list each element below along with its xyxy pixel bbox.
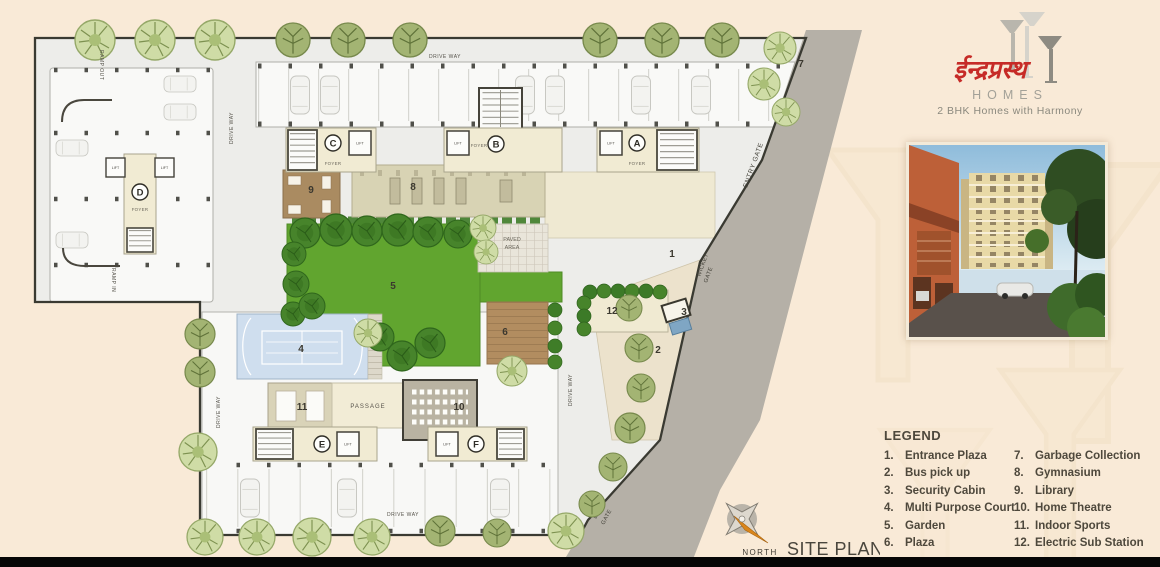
logo: ईन्द्रप्रस्थ HOMES 2 BHK Homes with Harm… [905,8,1115,128]
legend-item: 11.Indoor Sports [1014,520,1158,537]
lift-label: LIFT [356,142,364,146]
project-photo [906,142,1108,340]
car [164,76,196,92]
legend-item: 2.Bus pick up [884,467,1014,484]
gymnasium-room [352,165,545,217]
logo-homes-text: HOMES [915,88,1105,102]
legend-item: 6.Plaza [884,537,1014,554]
lift-label: LIFT [607,142,615,146]
driveway-label-bottom: DRIVE WAY [387,512,419,518]
area-3-security-cabin: 3 [681,307,687,318]
car [56,140,88,156]
building-d-label: D [137,188,144,199]
foyer-label: FOYER [325,161,342,166]
project-photo-render [909,145,1105,337]
passage-label: PASSAGE [350,404,385,410]
letterbox-bar [0,557,1160,567]
building-f: LIFT F [428,427,527,461]
ramp-in-label: RAMP IN [110,268,116,292]
building-e: E LIFT [253,427,377,461]
driveway-label-southwest: DRIVE WAY [216,396,222,428]
area-10-home-theatre: 10 [453,402,465,413]
car [632,76,651,114]
area-9-library: 9 [308,185,314,196]
car [291,76,310,114]
legend-item: 9.Library [1014,485,1158,502]
legend-item: 5.Garden [884,520,1014,537]
logo-tagline: 2 BHK Homes with Harmony [915,105,1105,117]
building-c: LIFT C FOYER [286,128,376,172]
car [241,479,260,517]
area-2-bus-pickup: 2 [655,345,661,356]
building-b-label: B [493,140,500,151]
legend-item: 1.Entrance Plaza [884,450,1014,467]
foyer-label: FOYER [629,161,646,166]
area-7-garbage-collection: 7 [798,59,804,70]
site-plan-drawing: LIFT C FOYER LIFT FOYER B LIFT A FOYER L… [0,0,880,567]
legend-item: 3.Security Cabin [884,485,1014,502]
car [692,76,711,114]
legend: LEGEND 1.Entrance Plaza 7.Garbage Collec… [884,428,1158,554]
building-a: LIFT A FOYER [597,128,699,172]
driveway-label-east: DRIVE WAY [568,374,574,406]
compass [711,488,773,550]
area-5-garden: 5 [390,281,396,292]
building-f-label: F [473,440,479,451]
area-11-indoor-sports: 11 [297,402,308,413]
legend-item: 4.Multi Purpose Court [884,502,1014,519]
staircase [127,228,153,252]
building-c-label: C [330,139,337,150]
car [546,76,565,114]
area-8-gymnasium: 8 [410,182,416,193]
area-4-multi-purpose-court: 4 [298,344,304,355]
legend-item: 12.Electric Sub Station [1014,537,1158,554]
paved-area-label-2: AREA [505,245,520,251]
lift-label: LIFT [443,443,451,447]
legend-grid: 1.Entrance Plaza 7.Garbage Collection 2.… [884,450,1158,554]
car [321,76,340,114]
area-1-entrance-plaza: 1 [669,249,675,260]
staircase [288,130,317,170]
lift-label: LIFT [454,142,462,146]
building-a-label: A [634,139,641,150]
car [164,104,196,120]
driveway-label-top: DRIVE WAY [429,54,461,60]
site-plan-brochure: { "plan": { "texts": { "drive_way": "DRI… [0,0,1160,567]
lift-label: LIFT [344,443,352,447]
ramp-out-label: RAMP OUT [98,50,104,80]
area-12-electric-substation: 12 [606,306,618,317]
legend-item: 8.Gymnasium [1014,467,1158,484]
lift-label: LIFT [112,166,120,170]
lift-label: LIFT [161,166,169,170]
paved-area-label-1: PAVED [503,237,521,243]
parking-block-north [256,62,795,127]
foyer-label: FOYER [132,207,149,212]
legend-item: 10.Home Theatre [1014,502,1158,519]
site-plan-title: SITE PLAN [787,539,880,559]
area-6-plaza: 6 [502,327,508,338]
legend-item: 7.Garbage Collection [1014,450,1158,467]
logo-name: ईन्द्रप्रस्थ [905,52,1075,86]
foyer-label: FOYER [471,143,488,148]
car [56,232,88,248]
building-e-label: E [319,440,325,451]
legend-title: LEGEND [884,428,1158,443]
driveway-label-west: DRIVE WAY [229,112,235,144]
north-label: NORTH [742,548,777,557]
car [491,479,510,517]
cream-apron [545,172,715,238]
car [338,479,357,517]
